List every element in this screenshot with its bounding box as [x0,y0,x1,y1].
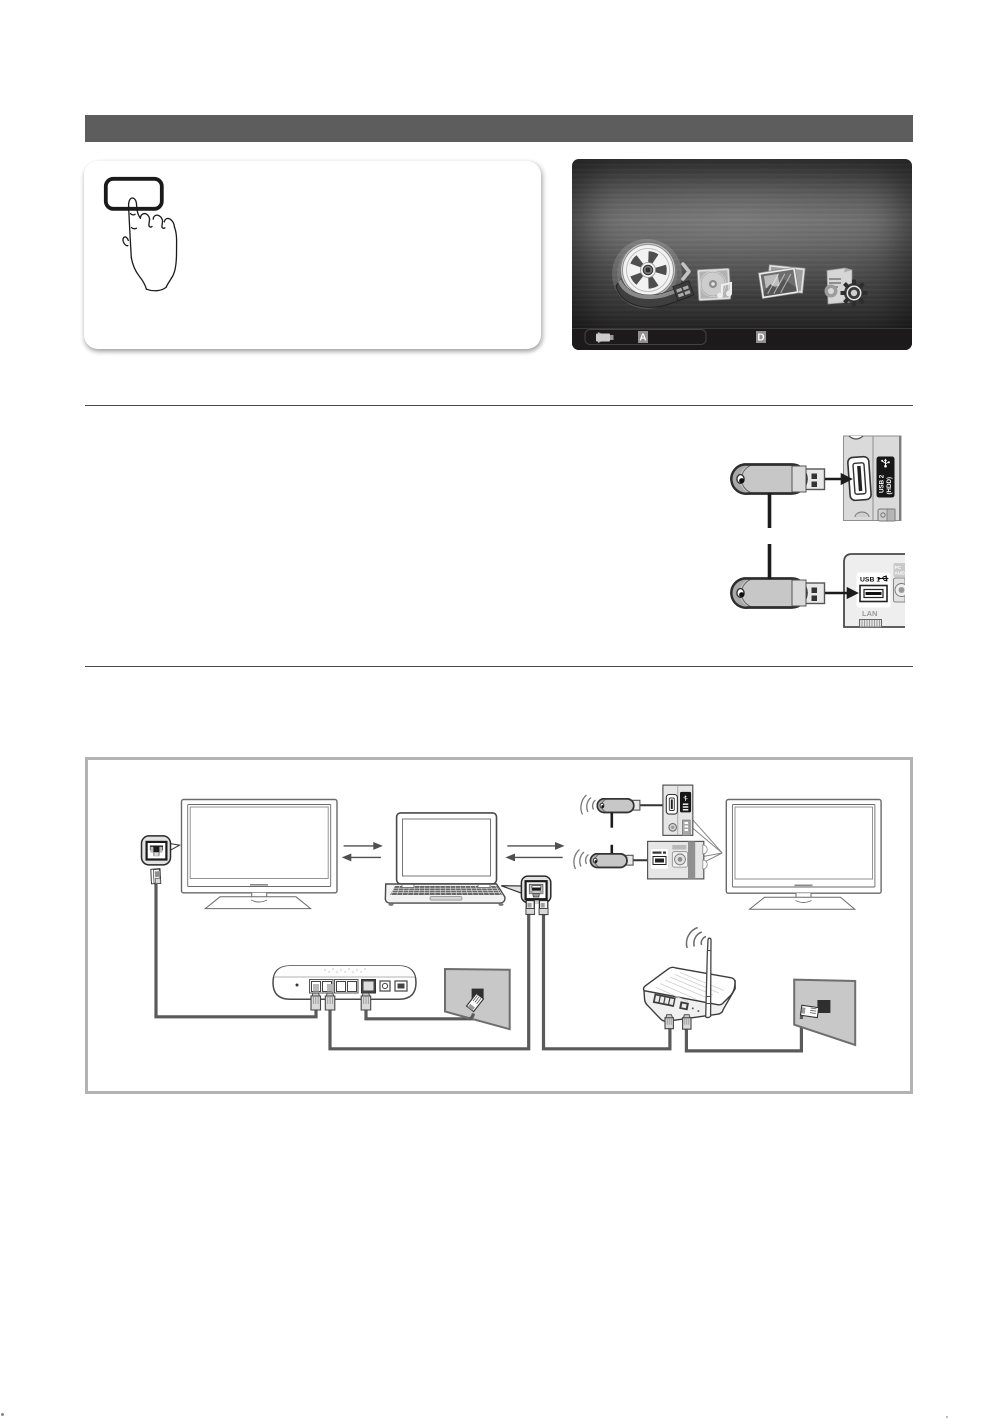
svg-text:USB 1: USB 1 [860,577,880,584]
svg-text:PC: PC [895,565,902,571]
svg-text:USB 2: USB 2 [879,474,886,493]
svg-text:LAN: LAN [862,609,877,618]
svg-text:(HDD): (HDD) [886,477,893,495]
svg-text:D: D [757,333,764,344]
svg-text:AUD: AUD [895,571,906,577]
svg-text:A: A [639,333,646,344]
